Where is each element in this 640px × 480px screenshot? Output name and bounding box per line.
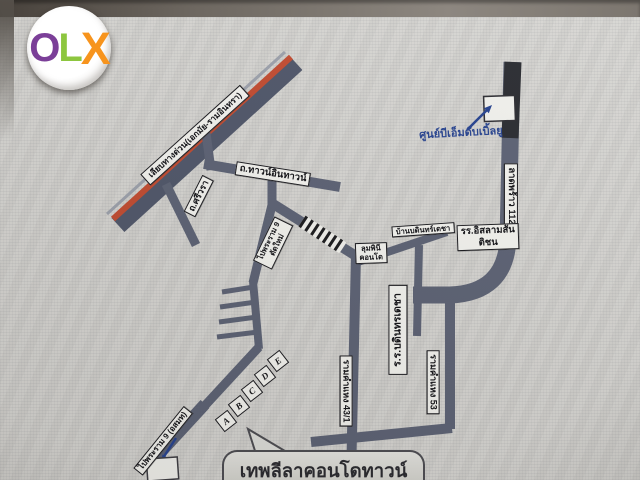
destination-name: เทพลีลาคอนโดทาวน์: [240, 460, 407, 480]
destination-callout: เทพลีลาคอนโดทาวน์: [222, 450, 425, 480]
soi-tick-4: [217, 332, 258, 337]
screen-bezel-top: [0, 0, 640, 17]
soi-tick-2: [220, 302, 256, 307]
olx-logo-letter-l: L: [58, 28, 80, 68]
soi-tick-3: [219, 317, 257, 322]
label-ramkhamhaeng-43-1: รามคำแหง 43/1: [339, 355, 352, 426]
road-bottom-link: [311, 428, 452, 442]
screen-bezel-left: [0, 0, 14, 140]
label-islam-school: รร.อิสลามสัน ติชน: [457, 223, 520, 251]
label-lat-phrao-112: ลาดพร้าว 112: [504, 163, 518, 228]
soi-tick-1: [222, 287, 254, 292]
olx-logo: O L X: [27, 6, 111, 90]
label-bodindecha-school: ร.ร.บดินทรเดชา: [388, 285, 407, 375]
map-photo: เลียบทางด่วน(เอกมัย-รามอินทรา) ถ.ศรีวรา …: [0, 0, 640, 480]
olx-logo-letter-x: X: [81, 26, 109, 71]
label-lumpini-condo-line2: คอนโด: [359, 253, 383, 263]
olx-logo-letter-o: O: [29, 28, 58, 68]
label-lumpini-condo: ลุมพินี คอนโด: [355, 242, 387, 264]
label-islam-school-line1: รร.อิสลามสัน: [461, 224, 515, 238]
label-islam-school-line2: ติชน: [461, 236, 515, 250]
label-ramkhamhaeng-53: รามคำแหง 53: [426, 350, 439, 414]
